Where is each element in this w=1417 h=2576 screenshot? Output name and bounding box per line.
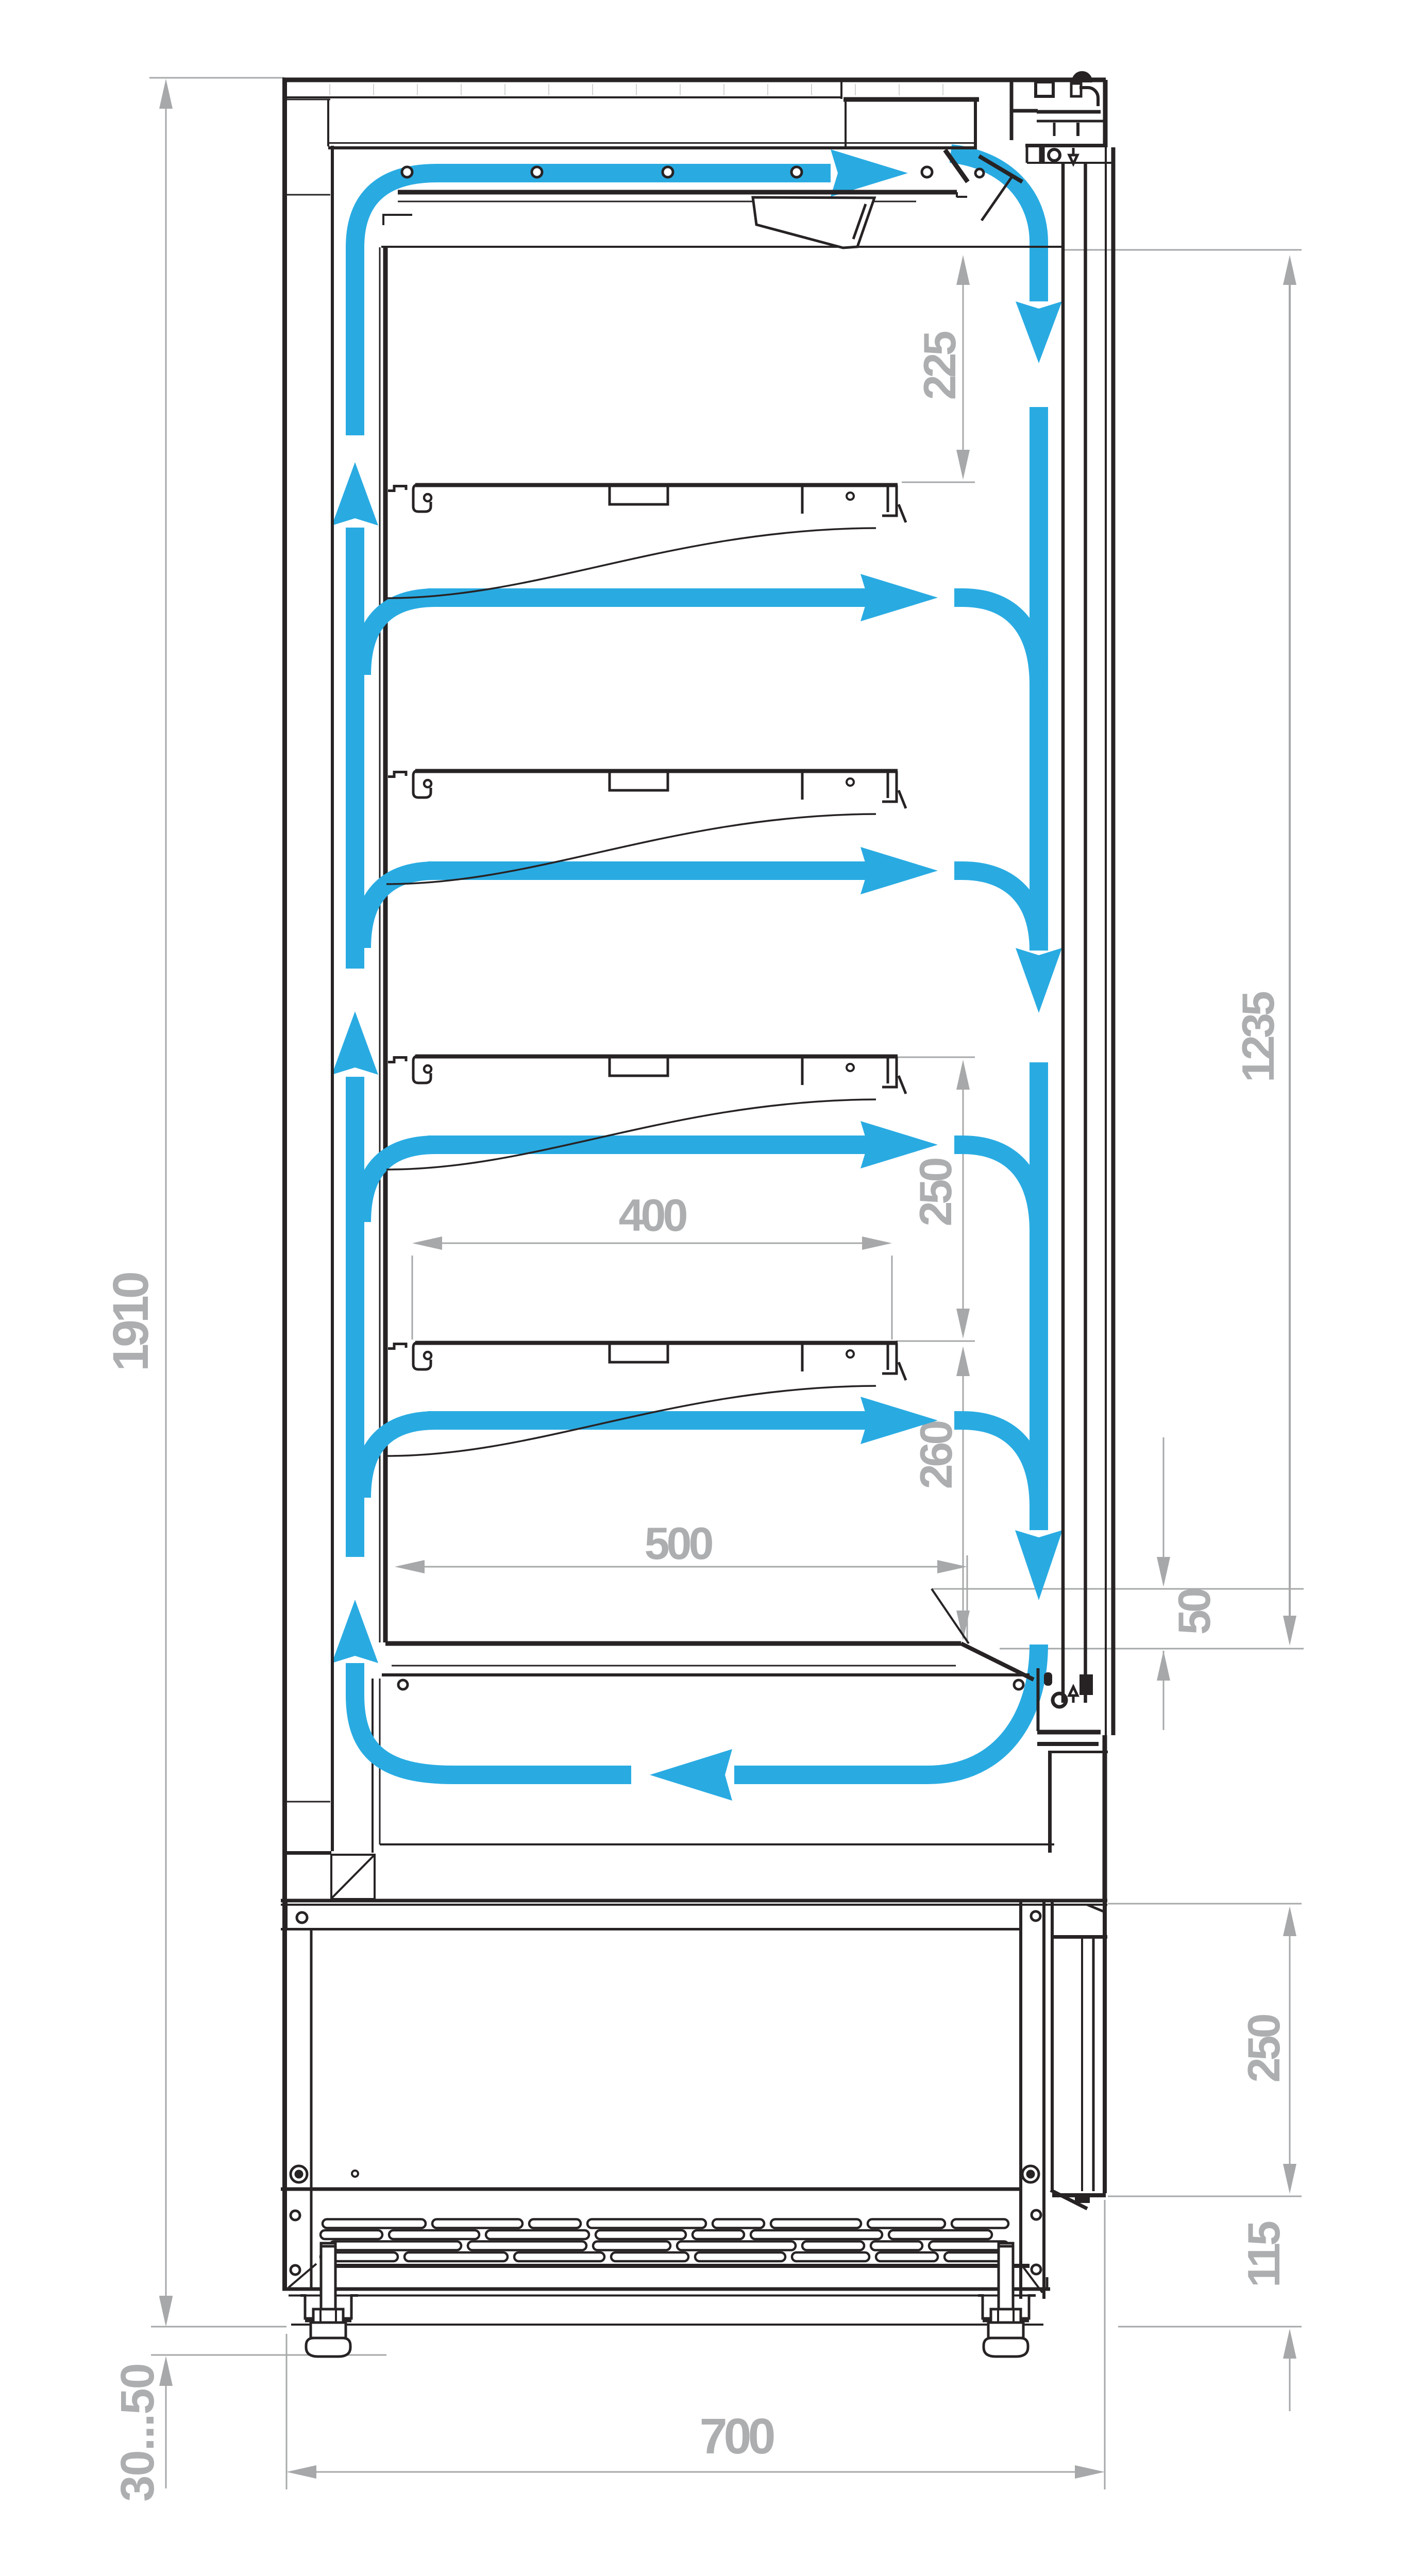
svg-text:50: 50 <box>1169 1589 1220 1635</box>
svg-text:250: 250 <box>910 1159 961 1227</box>
svg-text:225: 225 <box>914 332 965 400</box>
svg-text:115: 115 <box>1238 2222 1289 2287</box>
svg-text:500: 500 <box>645 1518 713 1569</box>
svg-text:400: 400 <box>619 1190 687 1241</box>
svg-text:260: 260 <box>910 1421 961 1489</box>
svg-text:30...50: 30...50 <box>111 2364 164 2501</box>
svg-text:700: 700 <box>700 2408 774 2464</box>
svg-text:1910: 1910 <box>103 1273 159 1371</box>
svg-text:250: 250 <box>1238 2015 1289 2083</box>
svg-text:1235: 1235 <box>1233 992 1284 1082</box>
